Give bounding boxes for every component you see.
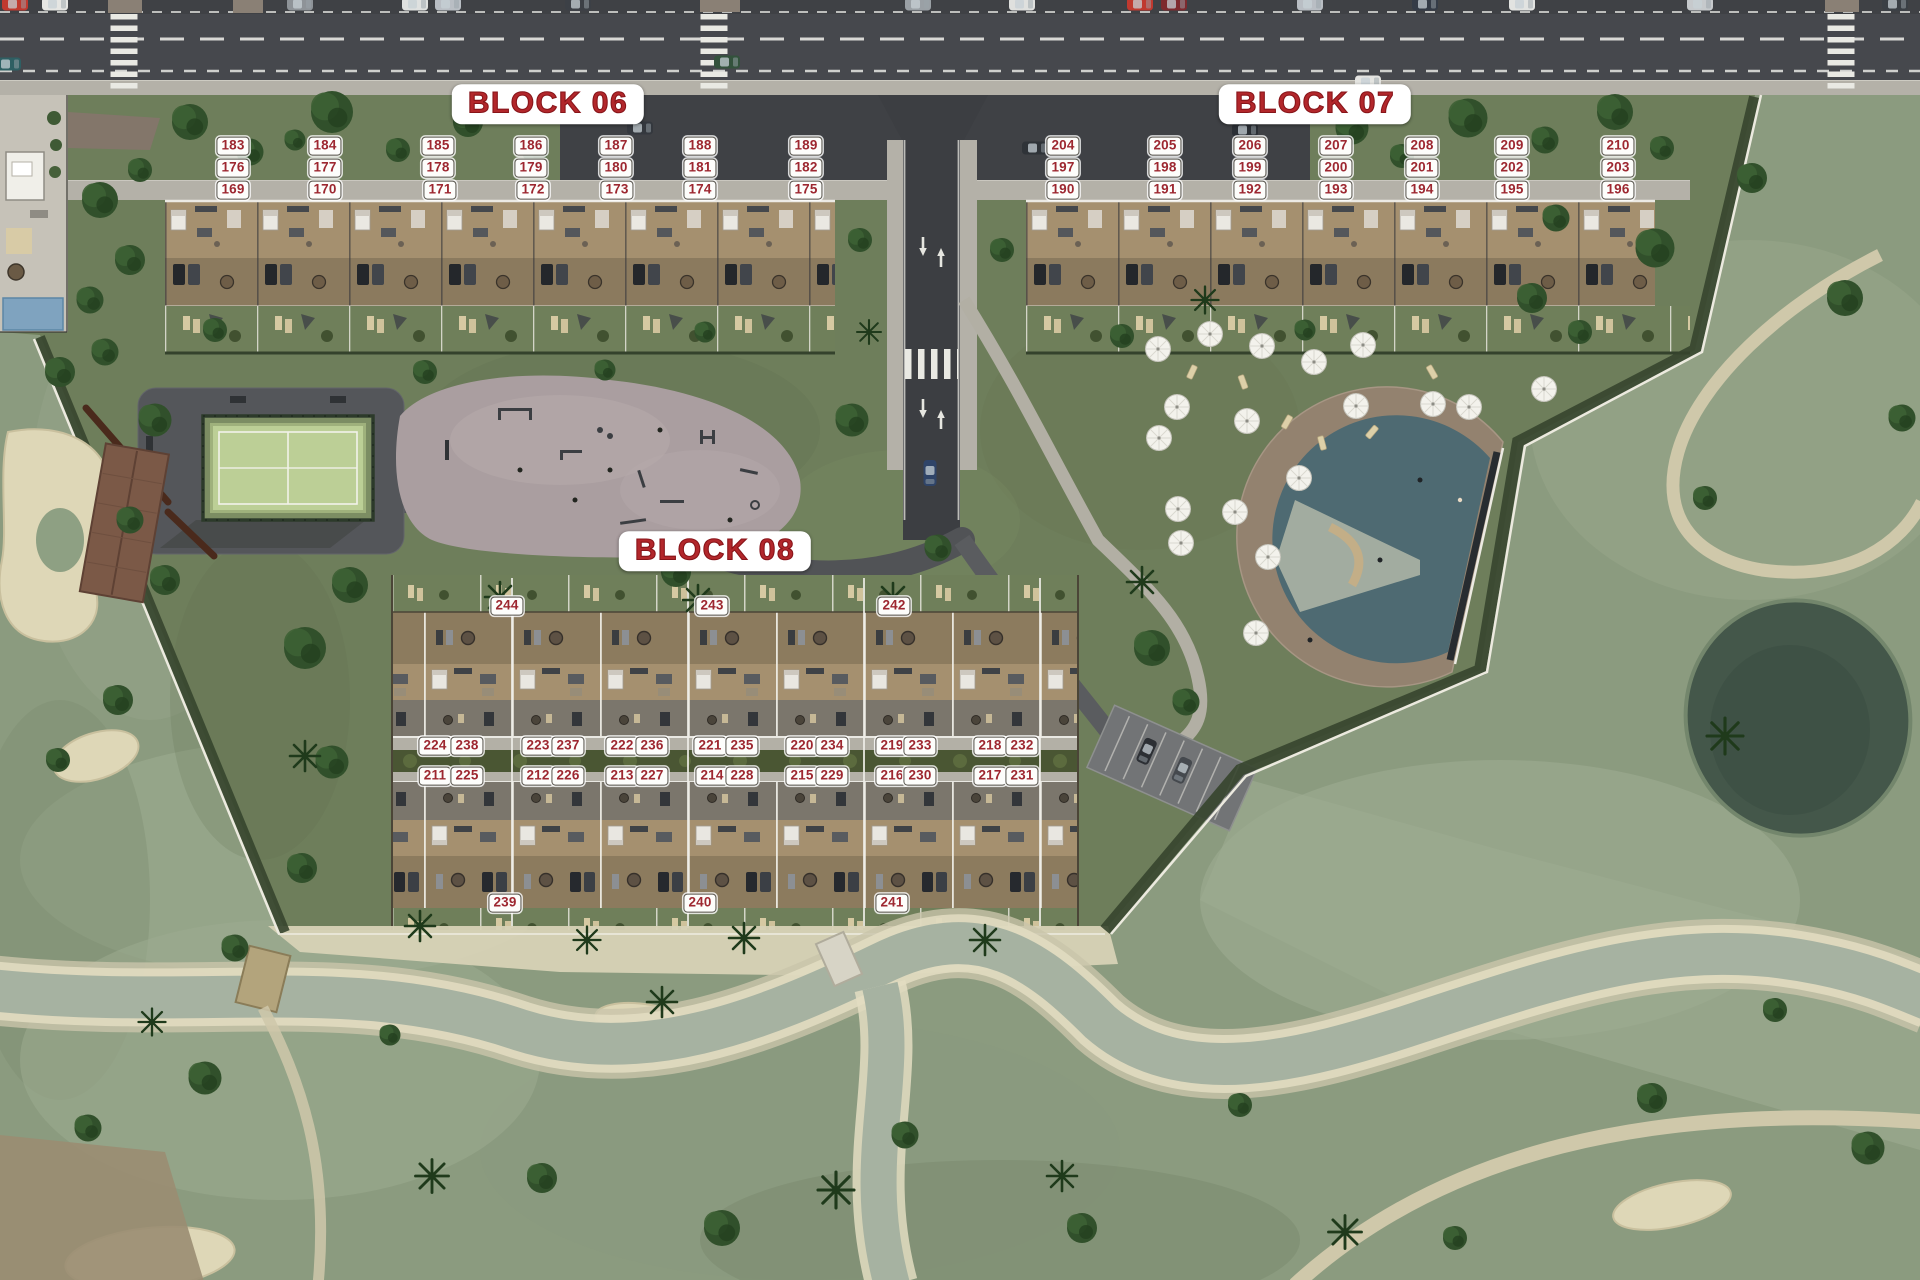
unit-label-181[interactable]: 181: [683, 159, 716, 178]
unit-label-236[interactable]: 236: [635, 737, 668, 756]
unit-label-212[interactable]: 212: [521, 767, 554, 786]
unit-label-244[interactable]: 244: [490, 597, 523, 616]
unit-label-203[interactable]: 203: [1601, 159, 1634, 178]
unit-label-189[interactable]: 189: [789, 137, 822, 156]
block-title-1[interactable]: BLOCK 06: [452, 84, 644, 124]
unit-label-235[interactable]: 235: [725, 737, 758, 756]
unit-label-221[interactable]: 221: [693, 737, 726, 756]
unit-label-202[interactable]: 202: [1495, 159, 1528, 178]
unit-label-170[interactable]: 170: [308, 181, 341, 200]
unit-label-239[interactable]: 239: [488, 894, 521, 913]
unit-label-171[interactable]: 171: [423, 181, 456, 200]
unit-label-237[interactable]: 237: [551, 737, 584, 756]
unit-label-179[interactable]: 179: [514, 159, 547, 178]
unit-label-232[interactable]: 232: [1005, 737, 1038, 756]
unit-label-182[interactable]: 182: [789, 159, 822, 178]
unit-label-187[interactable]: 187: [599, 137, 632, 156]
unit-label-176[interactable]: 176: [216, 159, 249, 178]
unit-label-214[interactable]: 214: [695, 767, 728, 786]
unit-label-175[interactable]: 175: [789, 181, 822, 200]
unit-label-169[interactable]: 169: [216, 181, 249, 200]
unit-label-242[interactable]: 242: [877, 597, 910, 616]
unit-label-193[interactable]: 193: [1319, 181, 1352, 200]
unit-labels-layer: BLOCK 0618318418518618718818917617717817…: [0, 0, 1920, 1280]
unit-label-186[interactable]: 186: [514, 137, 547, 156]
unit-label-241[interactable]: 241: [875, 894, 908, 913]
unit-label-200[interactable]: 200: [1319, 159, 1352, 178]
unit-label-206[interactable]: 206: [1233, 137, 1266, 156]
unit-label-222[interactable]: 222: [605, 737, 638, 756]
unit-label-198[interactable]: 198: [1148, 159, 1181, 178]
unit-label-183[interactable]: 183: [216, 137, 249, 156]
unit-label-229[interactable]: 229: [815, 767, 848, 786]
unit-label-201[interactable]: 201: [1405, 159, 1438, 178]
unit-label-240[interactable]: 240: [683, 894, 716, 913]
unit-label-207[interactable]: 207: [1319, 137, 1352, 156]
unit-label-190[interactable]: 190: [1046, 181, 1079, 200]
unit-label-196[interactable]: 196: [1601, 181, 1634, 200]
unit-label-172[interactable]: 172: [516, 181, 549, 200]
unit-label-220[interactable]: 220: [785, 737, 818, 756]
unit-label-209[interactable]: 209: [1495, 137, 1528, 156]
unit-label-233[interactable]: 233: [903, 737, 936, 756]
unit-label-180[interactable]: 180: [599, 159, 632, 178]
unit-label-218[interactable]: 218: [973, 737, 1006, 756]
unit-label-226[interactable]: 226: [551, 767, 584, 786]
unit-label-192[interactable]: 192: [1233, 181, 1266, 200]
unit-label-177[interactable]: 177: [308, 159, 341, 178]
unit-label-210[interactable]: 210: [1601, 137, 1634, 156]
block-title-2[interactable]: BLOCK 07: [1219, 84, 1411, 124]
unit-label-230[interactable]: 230: [903, 767, 936, 786]
unit-label-215[interactable]: 215: [785, 767, 818, 786]
unit-label-208[interactable]: 208: [1405, 137, 1438, 156]
masterplan: BLOCK 0618318418518618718818917617717817…: [0, 0, 1920, 1280]
unit-label-213[interactable]: 213: [605, 767, 638, 786]
unit-label-225[interactable]: 225: [450, 767, 483, 786]
unit-label-217[interactable]: 217: [973, 767, 1006, 786]
unit-label-204[interactable]: 204: [1046, 137, 1079, 156]
unit-label-231[interactable]: 231: [1005, 767, 1038, 786]
unit-label-184[interactable]: 184: [308, 137, 341, 156]
unit-label-178[interactable]: 178: [421, 159, 454, 178]
unit-label-188[interactable]: 188: [683, 137, 716, 156]
unit-label-195[interactable]: 195: [1495, 181, 1528, 200]
unit-label-185[interactable]: 185: [421, 137, 454, 156]
unit-label-223[interactable]: 223: [521, 737, 554, 756]
unit-label-174[interactable]: 174: [683, 181, 716, 200]
unit-label-211[interactable]: 211: [419, 767, 451, 786]
unit-label-238[interactable]: 238: [450, 737, 483, 756]
unit-label-173[interactable]: 173: [600, 181, 633, 200]
unit-label-224[interactable]: 224: [418, 737, 451, 756]
unit-label-191[interactable]: 191: [1148, 181, 1181, 200]
block-title-3[interactable]: BLOCK 08: [619, 531, 811, 571]
unit-label-228[interactable]: 228: [725, 767, 758, 786]
unit-label-199[interactable]: 199: [1233, 159, 1266, 178]
unit-label-194[interactable]: 194: [1405, 181, 1438, 200]
unit-label-197[interactable]: 197: [1046, 159, 1079, 178]
unit-label-234[interactable]: 234: [815, 737, 848, 756]
unit-label-205[interactable]: 205: [1148, 137, 1181, 156]
unit-label-243[interactable]: 243: [695, 597, 728, 616]
unit-label-227[interactable]: 227: [635, 767, 668, 786]
